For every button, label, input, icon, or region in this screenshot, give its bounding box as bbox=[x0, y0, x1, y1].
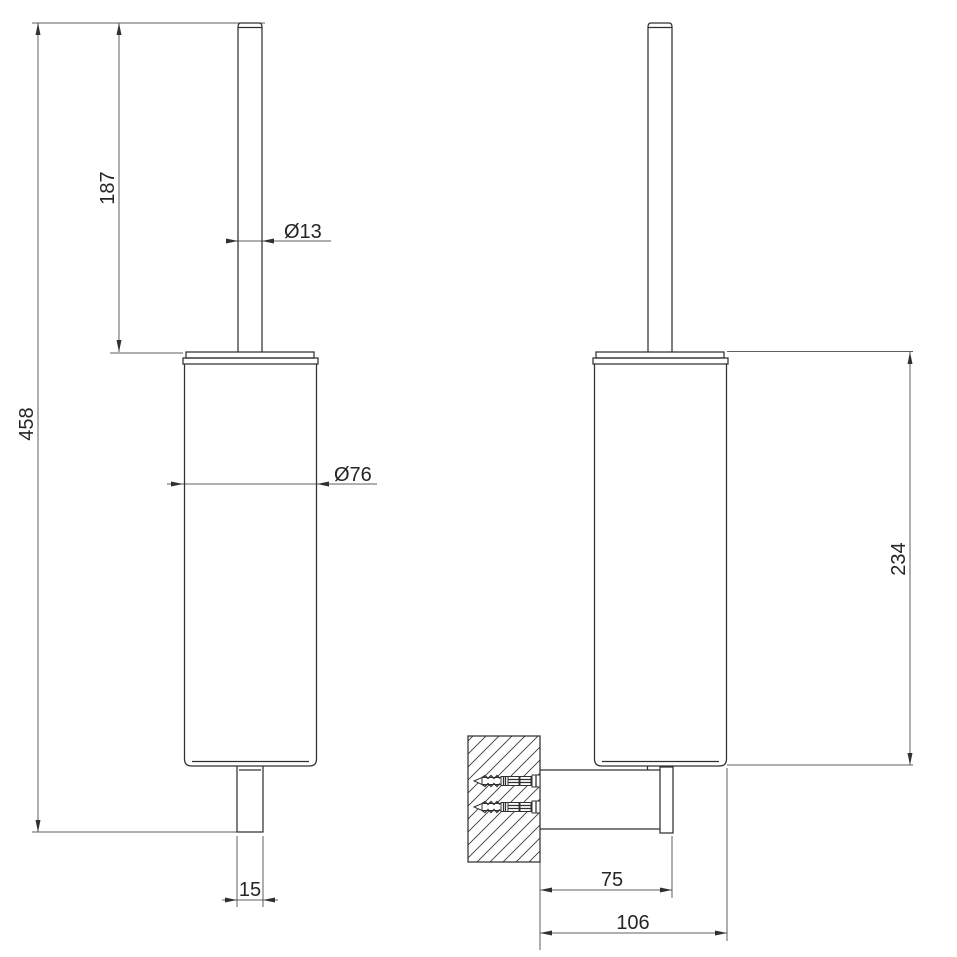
dim-total-depth: 106 bbox=[540, 768, 727, 941]
dim-cup-diameter-label: Ø76 bbox=[334, 464, 372, 486]
dim-total-height: 458 bbox=[16, 23, 265, 832]
dim-base-width: 15 bbox=[222, 836, 278, 907]
mounting-screw-top bbox=[474, 775, 540, 787]
brush-handle bbox=[238, 23, 262, 352]
dim-handle-length-label: 187 bbox=[97, 171, 119, 204]
cup-body-wall bbox=[595, 364, 727, 766]
dim-handle-length: 187 bbox=[97, 23, 183, 353]
dim-total-depth-label: 106 bbox=[616, 912, 649, 934]
wall-section bbox=[468, 736, 540, 862]
toilet-brush-dimension-drawing: 458 187 Ø13 Ø76 bbox=[0, 0, 957, 957]
dim-handle-diameter-label: Ø13 bbox=[284, 221, 322, 243]
dim-bracket-depth-label: 75 bbox=[601, 869, 623, 891]
base-stem bbox=[237, 766, 263, 832]
dim-wall-cup-height-label: 234 bbox=[888, 542, 910, 575]
brush-handle-wall bbox=[648, 23, 672, 352]
dim-handle-diameter: Ø13 bbox=[226, 221, 331, 244]
dim-wall-cup-height: 234 bbox=[727, 352, 913, 766]
wall-mounted-view: 234 75 106 bbox=[468, 23, 913, 950]
mounting-screw-bottom bbox=[474, 801, 540, 813]
dim-base-width-label: 15 bbox=[239, 879, 261, 901]
cup-lid bbox=[183, 352, 318, 364]
cup-lid-wall bbox=[593, 352, 728, 364]
dim-total-height-label: 458 bbox=[16, 407, 38, 440]
wall-bracket bbox=[540, 766, 673, 833]
cup-body bbox=[185, 364, 317, 766]
dim-cup-diameter: Ø76 bbox=[167, 464, 377, 487]
freestanding-view: 458 187 Ø13 Ø76 bbox=[16, 23, 377, 907]
technical-drawing-page: 458 187 Ø13 Ø76 bbox=[0, 0, 957, 957]
